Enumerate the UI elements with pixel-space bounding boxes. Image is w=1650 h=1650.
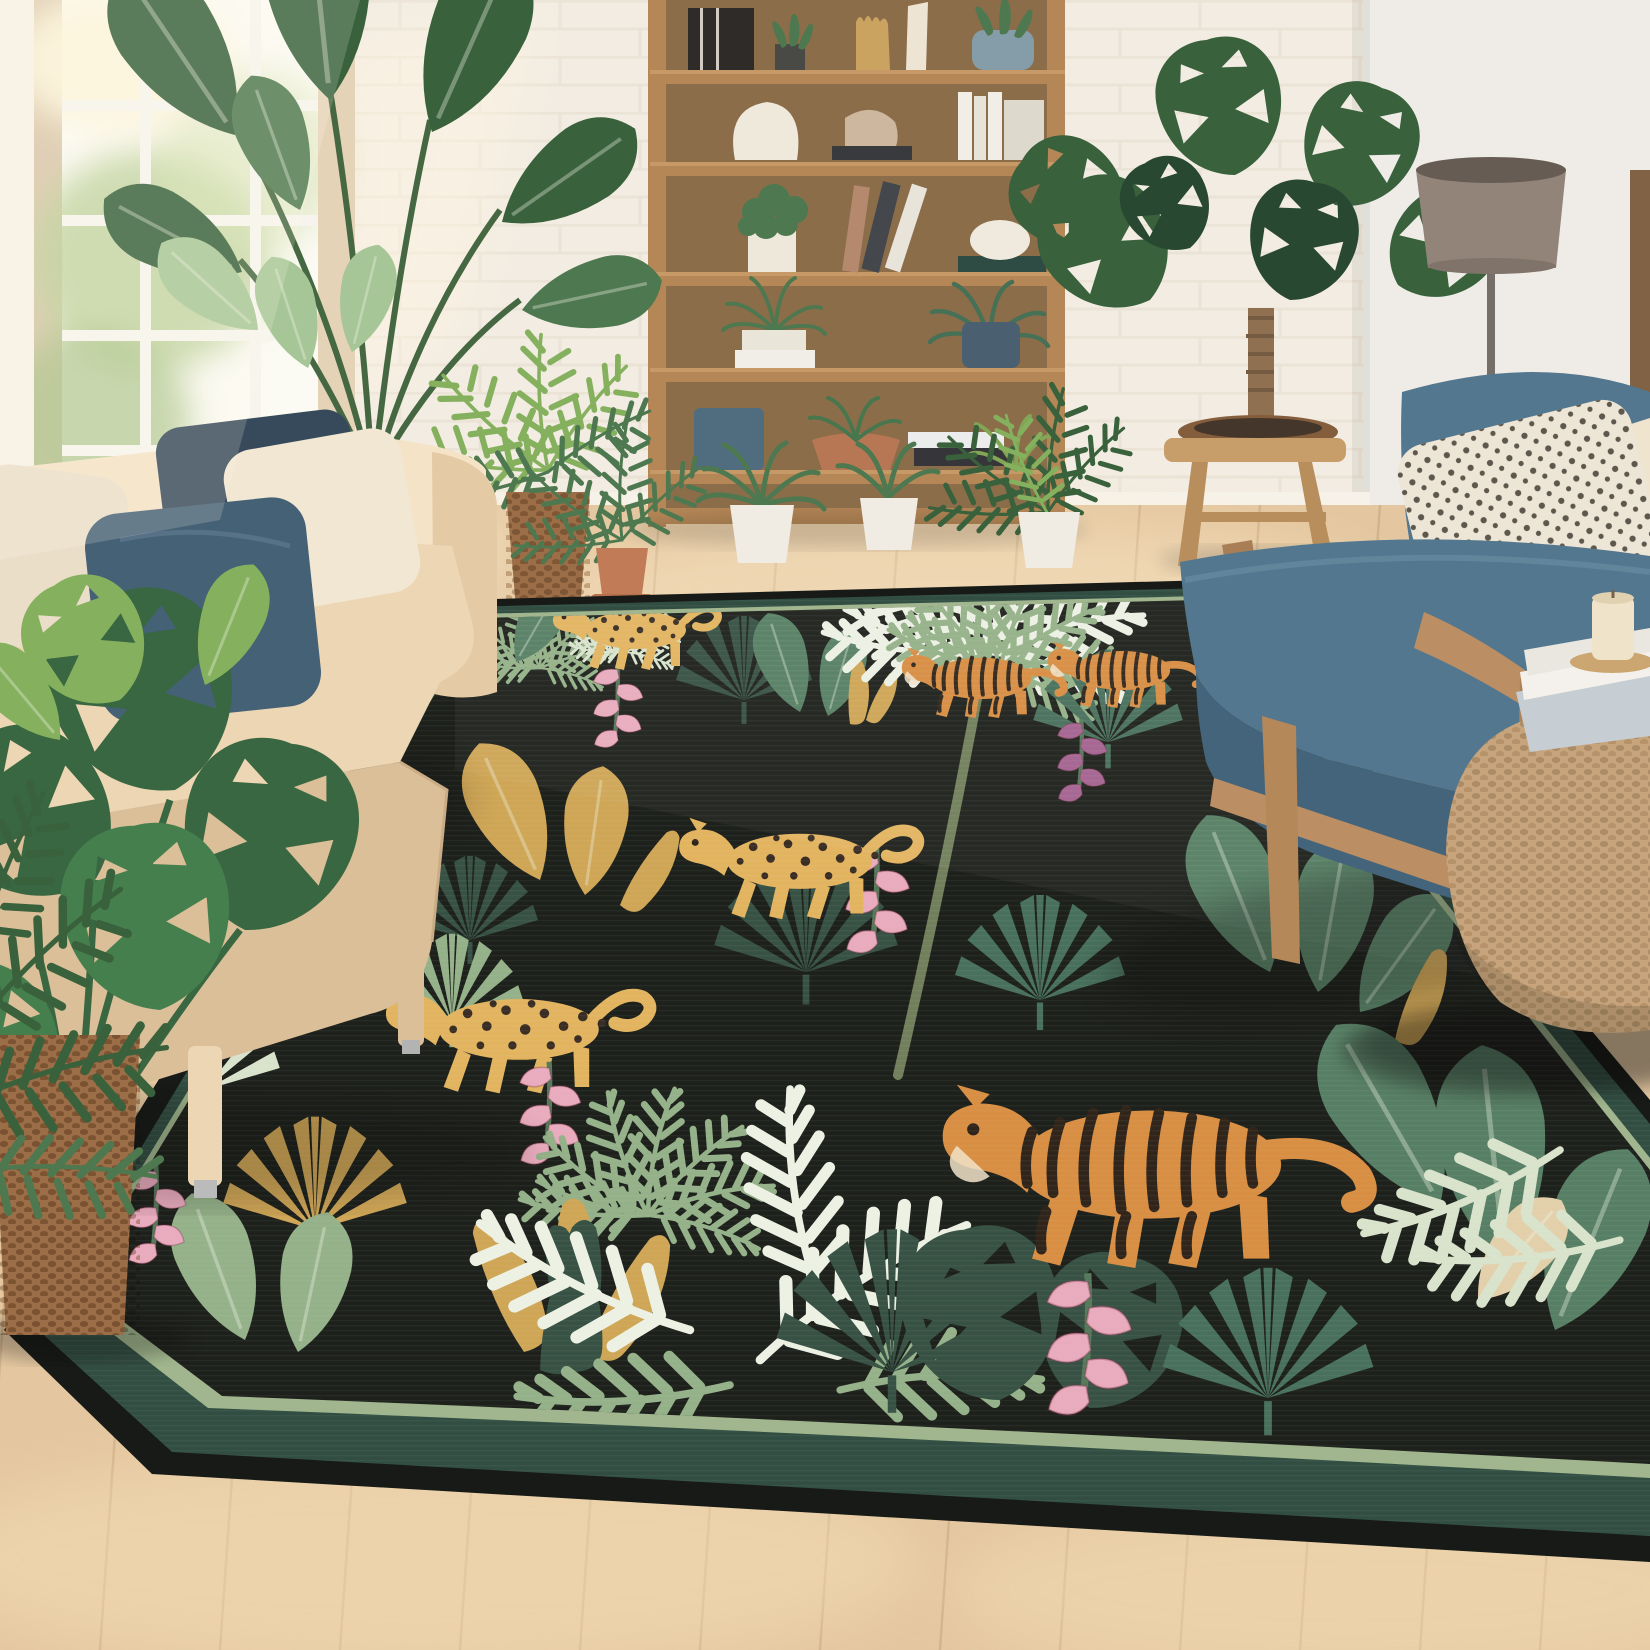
light-overlay — [0, 0, 1650, 1650]
scene-canvas — [0, 0, 1650, 1650]
living-room-scene — [0, 0, 1650, 1650]
